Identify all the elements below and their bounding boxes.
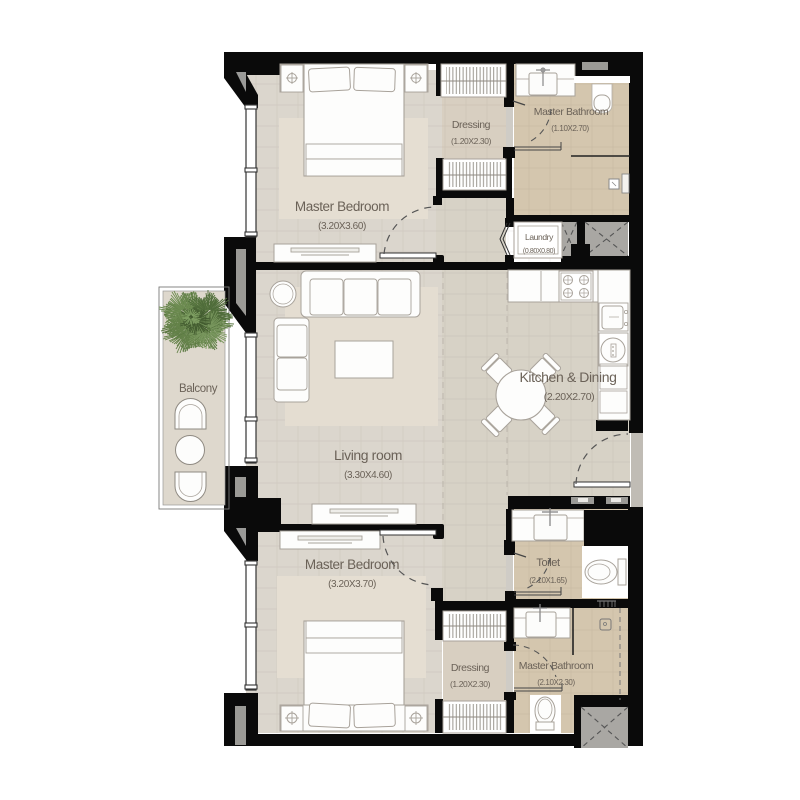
svg-text:Laundry: Laundry bbox=[525, 232, 554, 242]
svg-text:Dressing: Dressing bbox=[452, 119, 491, 131]
svg-text:Balcony: Balcony bbox=[179, 383, 218, 395]
svg-text:(3.20X3.70): (3.20X3.70) bbox=[328, 579, 376, 590]
svg-text:Master Bedroom: Master Bedroom bbox=[305, 557, 399, 572]
svg-text:Master Bedroom: Master Bedroom bbox=[295, 199, 389, 214]
svg-text:(3.20X3.60): (3.20X3.60) bbox=[318, 221, 366, 232]
svg-text:(2.10X1.65): (2.10X1.65) bbox=[529, 576, 567, 585]
svg-text:Master Bathroom: Master Bathroom bbox=[534, 106, 609, 118]
svg-text:(3.30X4.60): (3.30X4.60) bbox=[344, 470, 392, 481]
svg-text:(1.10X2.70): (1.10X2.70) bbox=[551, 124, 589, 133]
svg-text:Living room: Living room bbox=[334, 447, 402, 463]
svg-text:Master Bathroom: Master Bathroom bbox=[519, 660, 594, 672]
svg-text:Toilet: Toilet bbox=[536, 557, 560, 569]
svg-text:(0.80X0.80): (0.80X0.80) bbox=[523, 248, 555, 255]
svg-text:Dressing: Dressing bbox=[451, 662, 490, 674]
svg-text:Kitchen & Dining: Kitchen & Dining bbox=[519, 369, 616, 385]
svg-text:(1.20X2.30): (1.20X2.30) bbox=[451, 136, 492, 146]
svg-text:(2.10X2.30): (2.10X2.30) bbox=[537, 678, 575, 687]
svg-text:(2.20X2.70): (2.20X2.70) bbox=[544, 391, 594, 403]
svg-text:(1.20X2.30): (1.20X2.30) bbox=[450, 679, 491, 689]
